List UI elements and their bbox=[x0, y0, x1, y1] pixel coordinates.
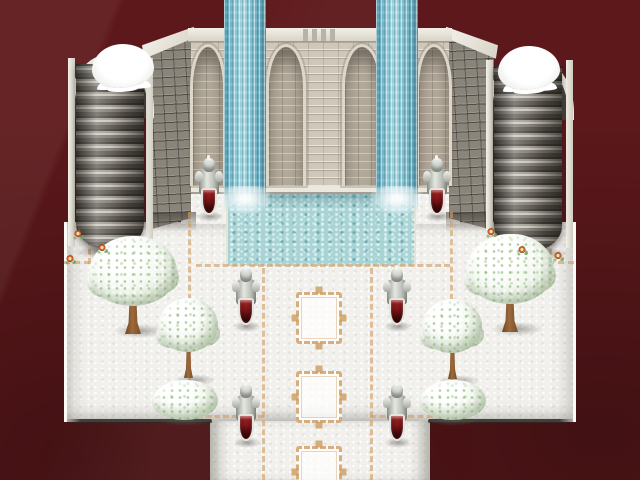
tower-trim bbox=[68, 58, 75, 246]
ornate-floor-tile bbox=[296, 292, 342, 344]
flower-decoration bbox=[98, 244, 106, 252]
snowy-bush bbox=[420, 380, 486, 426]
wall-crenellation bbox=[303, 29, 337, 41]
statue-pauldron bbox=[443, 171, 451, 182]
statue-pauldron bbox=[215, 171, 223, 182]
statue-pauldron bbox=[403, 281, 411, 292]
statue-pauldron bbox=[383, 281, 391, 292]
tower-left bbox=[68, 50, 154, 252]
snowy-tree bbox=[156, 298, 220, 388]
tower-trim bbox=[486, 60, 493, 248]
tower-column bbox=[76, 64, 144, 250]
statue-pauldron bbox=[383, 397, 391, 408]
waterfall-stream bbox=[376, 0, 418, 214]
bush-foliage bbox=[420, 380, 486, 420]
snowy-bush bbox=[152, 380, 218, 426]
waterfall bbox=[224, 0, 266, 214]
flower-decoration bbox=[74, 230, 82, 238]
flower-decoration bbox=[66, 255, 74, 263]
tower-column bbox=[494, 66, 562, 252]
statue-pauldron bbox=[252, 281, 260, 292]
game-viewport[interactable] bbox=[0, 0, 640, 480]
wall-arch-niche bbox=[266, 44, 306, 186]
statue-helmet bbox=[240, 268, 252, 282]
ornate-floor-tile bbox=[296, 446, 342, 480]
knight-statue[interactable] bbox=[382, 268, 412, 332]
tower-right bbox=[486, 52, 574, 254]
statue-pauldron bbox=[232, 281, 240, 292]
snowy-tree bbox=[420, 299, 484, 389]
knight-statue[interactable] bbox=[231, 268, 261, 332]
statue-helmet bbox=[240, 384, 252, 398]
bush-foliage bbox=[152, 380, 218, 420]
path-border bbox=[370, 268, 373, 480]
statue-pauldron bbox=[403, 397, 411, 408]
statue-pauldron bbox=[232, 397, 240, 408]
knight-statue[interactable] bbox=[422, 158, 452, 222]
tree-foliage bbox=[466, 234, 554, 304]
tower-trim bbox=[566, 60, 573, 248]
tower-trim bbox=[146, 58, 153, 246]
flower-decoration bbox=[554, 252, 562, 260]
waterfall-foam bbox=[219, 186, 271, 214]
statue-helmet bbox=[203, 158, 215, 172]
statue-pauldron bbox=[195, 171, 203, 182]
statue-helmet bbox=[391, 268, 403, 282]
path-border bbox=[262, 268, 265, 480]
statue-helmet bbox=[391, 384, 403, 398]
waterfall-foam bbox=[371, 186, 423, 214]
knight-statue[interactable] bbox=[382, 384, 412, 448]
knight-statue[interactable] bbox=[194, 158, 224, 222]
waterfall bbox=[376, 0, 418, 214]
statue-helmet bbox=[431, 158, 443, 172]
knight-statue[interactable] bbox=[231, 384, 261, 448]
flower-decoration bbox=[487, 228, 495, 236]
ornate-floor-tile bbox=[296, 371, 342, 423]
statue-pauldron bbox=[423, 171, 431, 182]
statue-pauldron bbox=[252, 397, 260, 408]
path-border bbox=[196, 264, 450, 267]
waterfall-stream bbox=[224, 0, 266, 214]
tree-foliage bbox=[422, 299, 482, 353]
tree-foliage bbox=[158, 298, 218, 352]
flower-decoration bbox=[518, 246, 526, 254]
